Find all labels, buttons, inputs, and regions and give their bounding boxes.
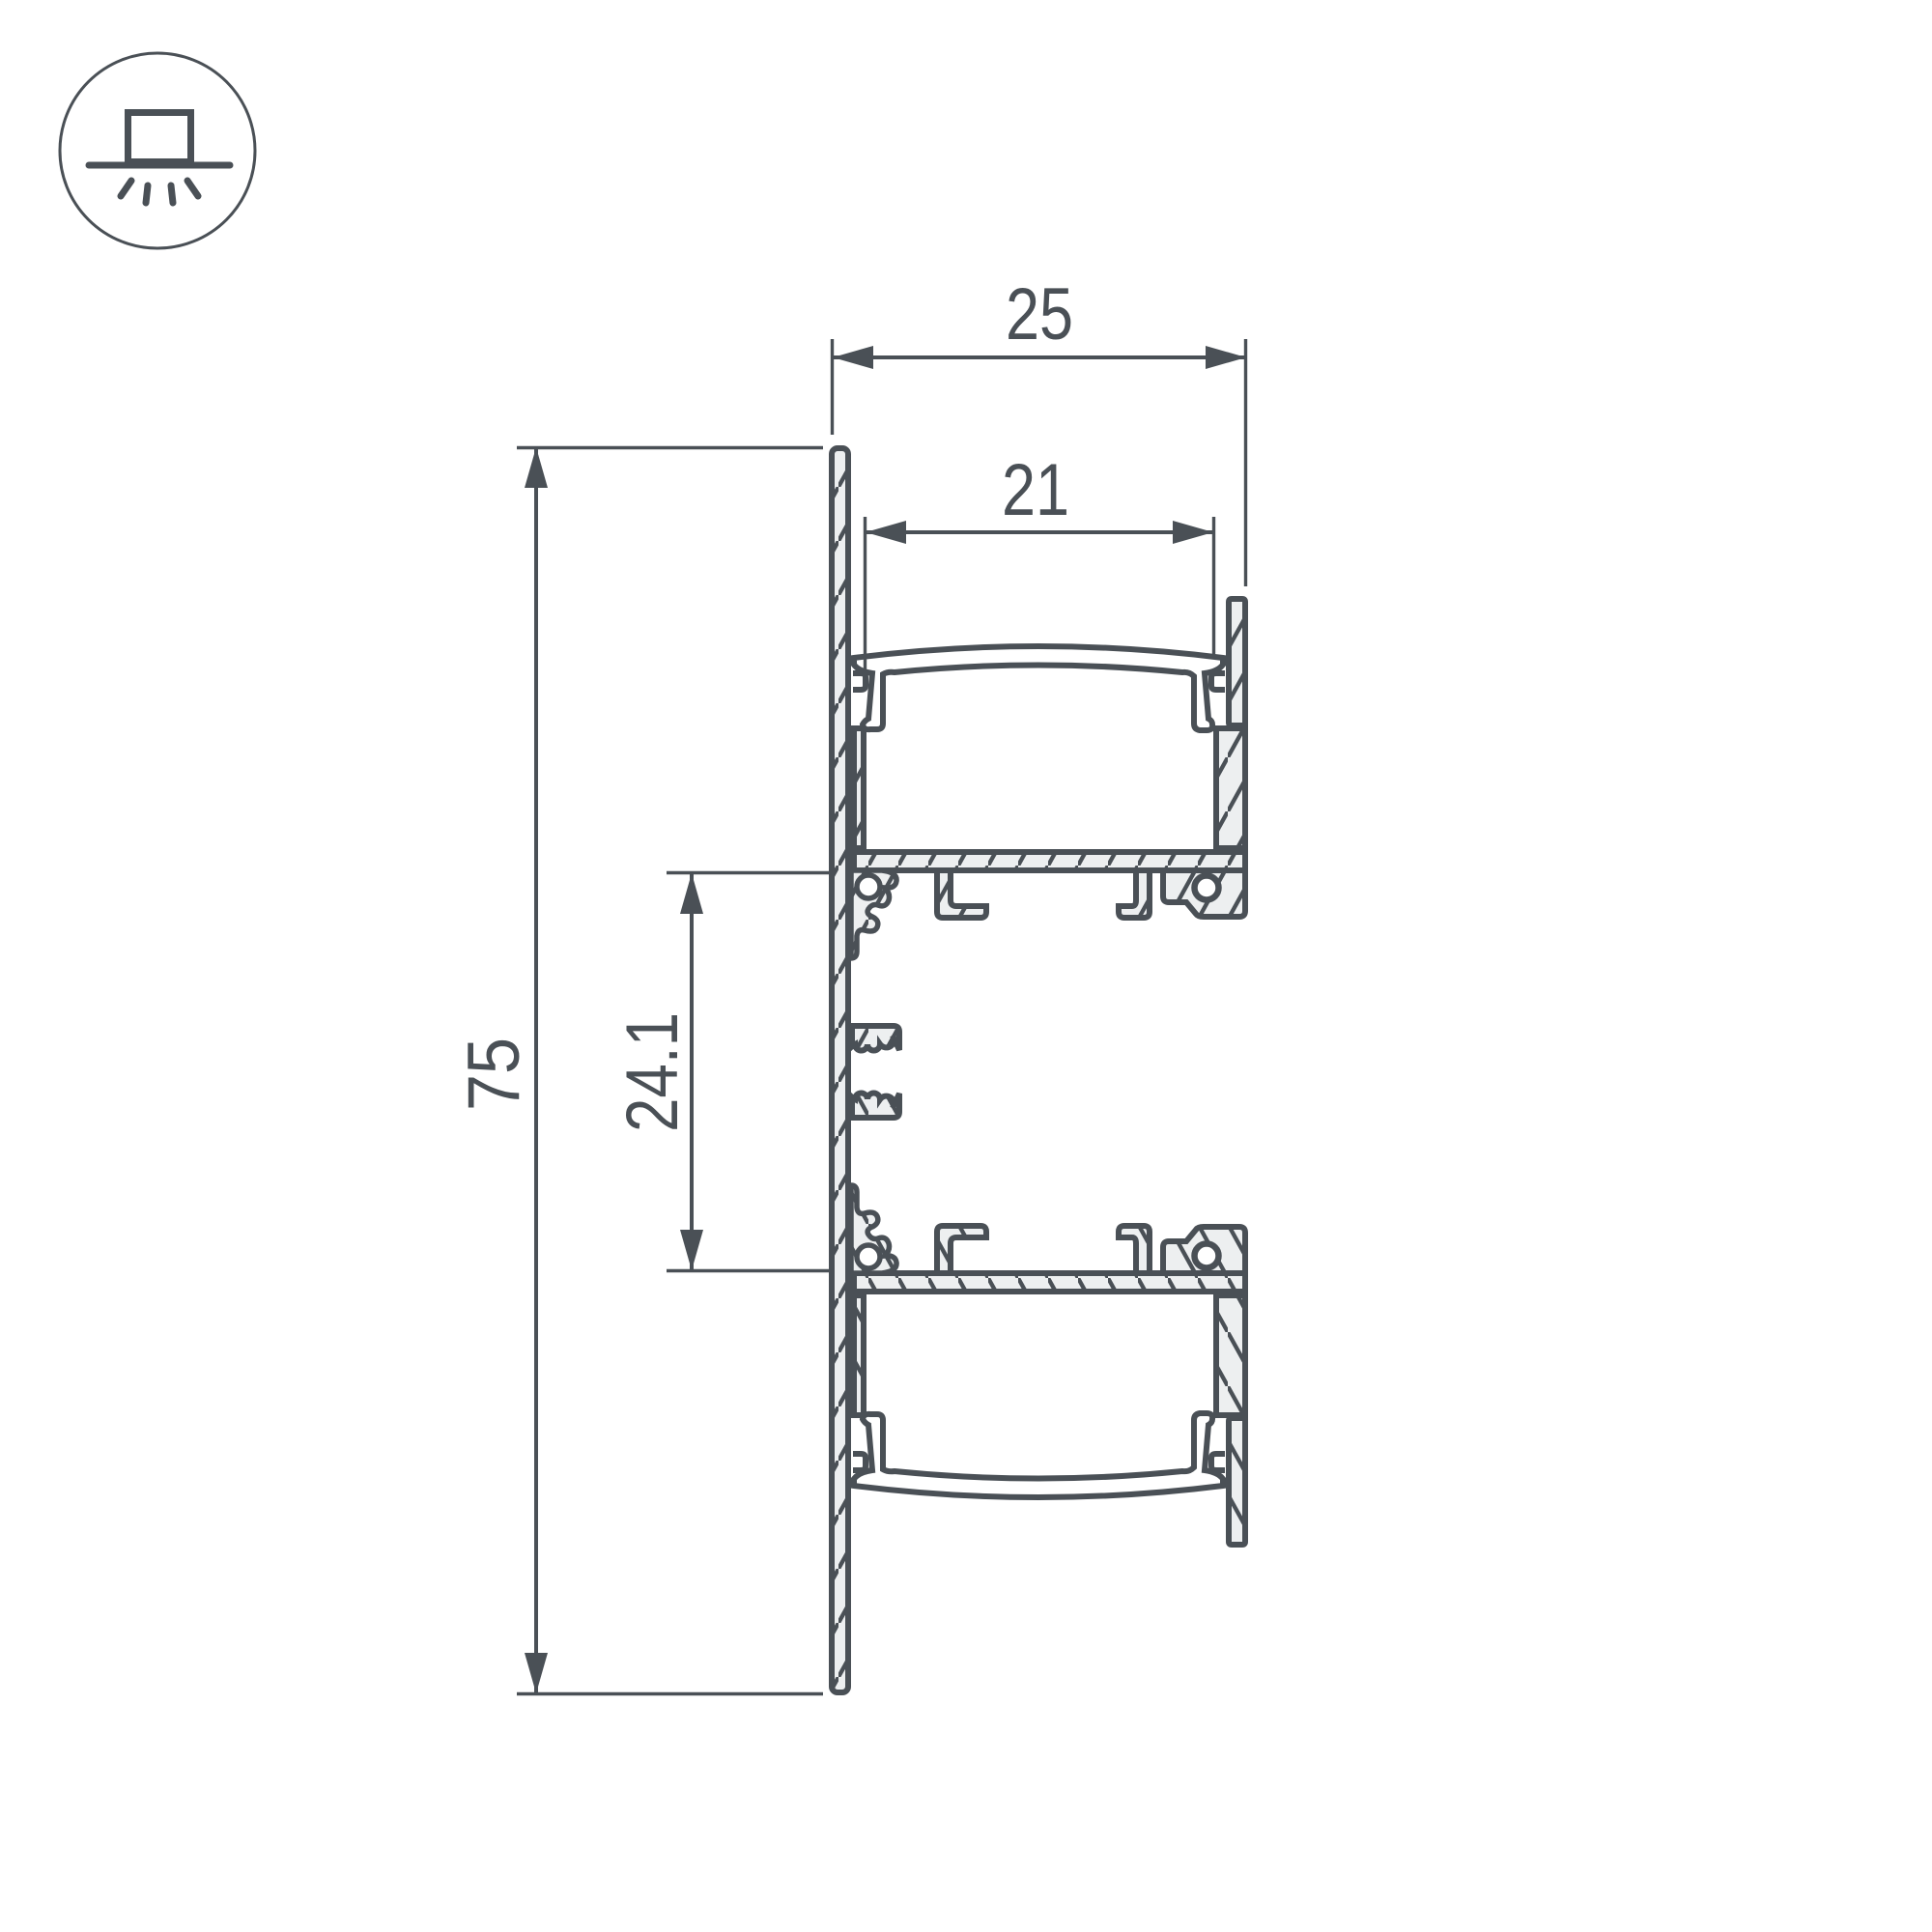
svg-text:24.1: 24.1 <box>611 1012 694 1132</box>
svg-text:21: 21 <box>1002 449 1069 531</box>
svg-text:25: 25 <box>1006 273 1073 355</box>
svg-text:75: 75 <box>453 1037 535 1111</box>
